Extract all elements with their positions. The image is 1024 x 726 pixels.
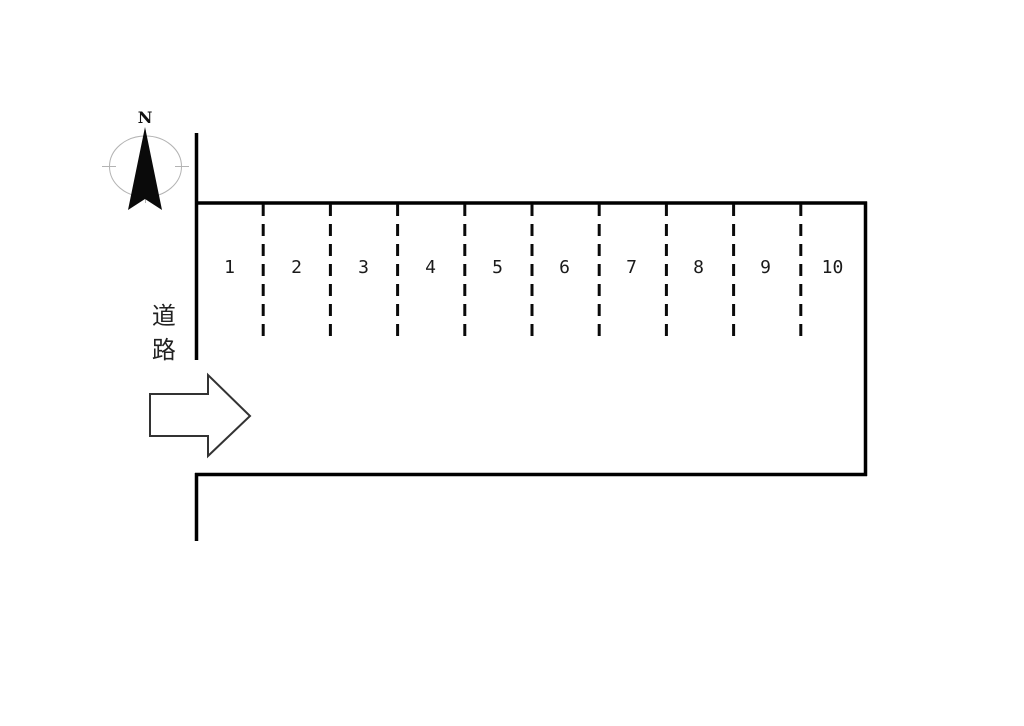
parking-space-number: 8 xyxy=(665,203,732,331)
parking-lot-diagram: N 道路 1 2 3 4 5 6 7 8 9 10 xyxy=(0,0,1024,726)
parking-space-number: 10 xyxy=(799,203,866,331)
entrance-arrow-icon xyxy=(150,375,250,456)
parking-space-number: 9 xyxy=(732,203,799,331)
parking-space-number: 6 xyxy=(531,203,598,331)
road-label: 道路 xyxy=(148,303,174,371)
parking-space-number: 1 xyxy=(196,203,263,331)
compass-needle-icon xyxy=(128,127,162,210)
parking-lot-outline xyxy=(195,133,867,541)
parking-spaces-row: 1 2 3 4 5 6 7 8 9 10 xyxy=(196,203,866,331)
parking-space-number: 4 xyxy=(397,203,464,331)
parking-space-number: 5 xyxy=(464,203,531,331)
parking-space-number: 7 xyxy=(598,203,665,331)
parking-space-number: 3 xyxy=(330,203,397,331)
parking-space-number: 2 xyxy=(263,203,330,331)
north-label: N xyxy=(131,110,159,126)
compass-rose xyxy=(102,127,189,210)
